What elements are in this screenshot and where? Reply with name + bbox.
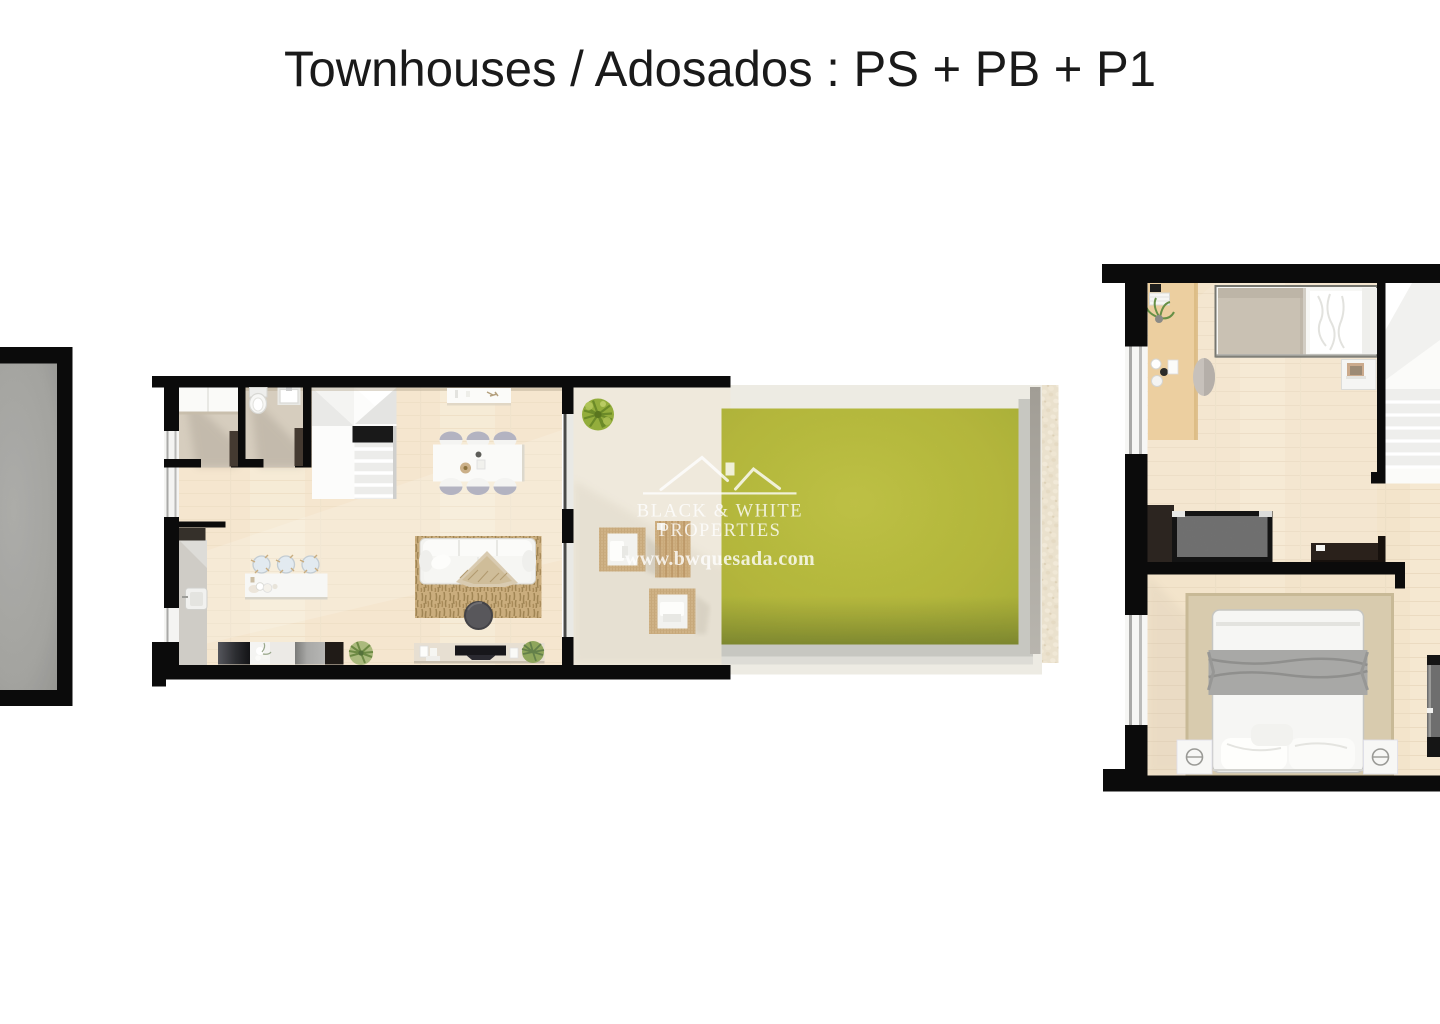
svg-text:Townhouses / Adosados : PS + P: Townhouses / Adosados : PS + PB + P1 [284, 41, 1156, 97]
svg-text:www.bwquesada.com: www.bwquesada.com [625, 548, 815, 570]
svg-text:BLACK & WHITE: BLACK & WHITE [637, 502, 803, 522]
svg-text:PROPERTIES: PROPERTIES [659, 521, 782, 541]
